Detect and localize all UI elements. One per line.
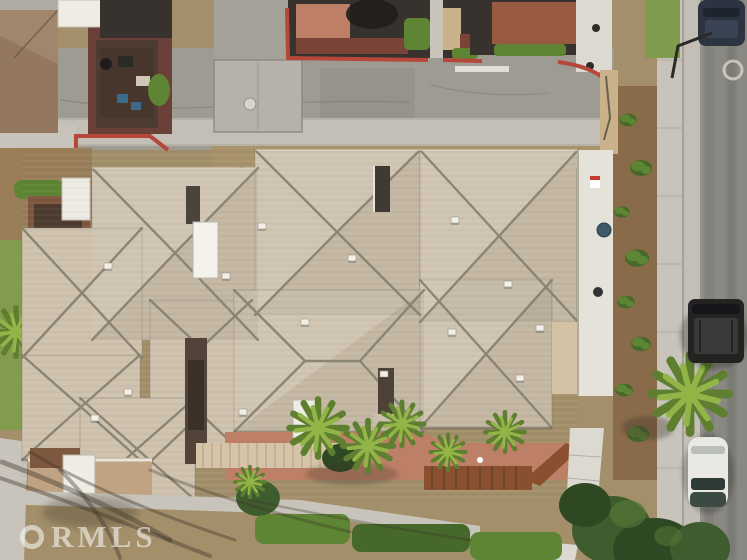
hedge <box>494 44 566 56</box>
charcoal-roof <box>100 0 172 38</box>
walkway <box>430 0 443 58</box>
satellite-dish <box>597 223 611 237</box>
bbq-grill <box>100 58 112 70</box>
manhole-cover <box>244 98 256 110</box>
white-car <box>682 434 734 514</box>
white-stall-line <box>455 66 509 72</box>
neighbor-north-center <box>287 0 490 61</box>
black-suv <box>680 299 747 370</box>
patio-object <box>477 457 483 463</box>
aerial-photo-canvas <box>0 0 747 560</box>
brick-patio <box>492 2 576 44</box>
white-flat-roof <box>58 0 102 27</box>
patio-chair <box>117 94 128 103</box>
tree-over-roof <box>346 0 398 29</box>
aerial-photo: RMLS <box>0 0 747 560</box>
side-patio-wall <box>552 322 578 394</box>
terracotta-patio <box>296 4 350 40</box>
stairwell-gap <box>374 166 390 212</box>
right-sidewalk <box>657 0 683 560</box>
wall-fixture <box>593 287 603 297</box>
patio-chair <box>131 102 141 110</box>
navy-car <box>698 0 745 46</box>
patio-table <box>136 76 150 86</box>
parkway-grass <box>645 0 680 58</box>
alley-driveway <box>214 0 288 62</box>
green-bush <box>148 74 170 106</box>
post <box>592 24 600 32</box>
white-skylight <box>193 222 218 278</box>
hedge-row <box>470 532 562 560</box>
white-walkway <box>576 0 612 72</box>
white-shed-roof <box>62 178 90 220</box>
hedge <box>404 18 430 50</box>
roof-gap <box>186 186 200 224</box>
